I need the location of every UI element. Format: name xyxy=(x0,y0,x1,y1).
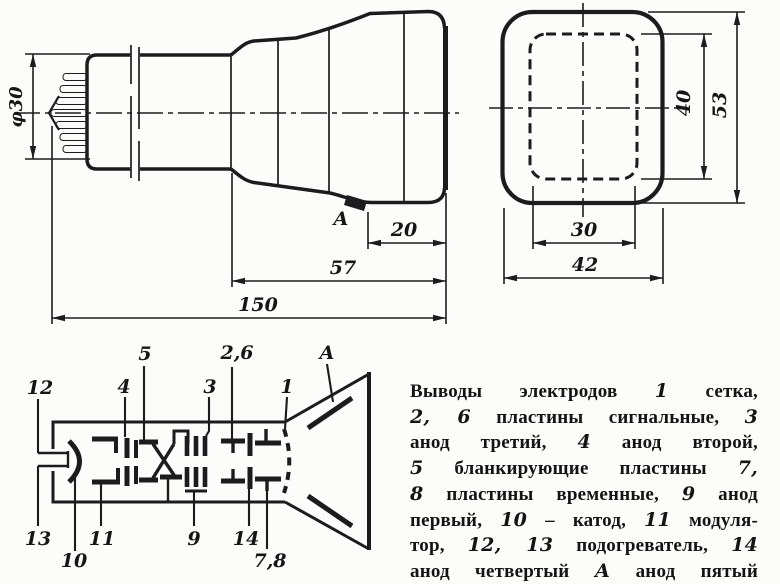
tube-envelope xyxy=(87,12,446,212)
dim-30: 30 xyxy=(533,186,635,249)
dim-42-label: 42 xyxy=(572,254,598,276)
legend-line: тор, 12, 13 подогреватель, 14 xyxy=(410,533,758,559)
legend-line: первый, 10 – катод, 11 модуля- xyxy=(410,508,758,534)
dim-40: 40 xyxy=(641,34,712,179)
label-12: 12 xyxy=(27,377,53,399)
dim-20: 20 xyxy=(368,193,446,324)
dim-150-label: 150 xyxy=(238,294,278,316)
label-13: 13 xyxy=(25,528,51,550)
dim-30-label: 30 xyxy=(571,219,597,241)
scanned-figure-page: φ30 20 57 150 А xyxy=(0,0,780,584)
anode-tab-label: А xyxy=(331,208,348,230)
electrode-diagram: 12 4 5 3 2,6 1 А 13 10 11 9 14 7,8 xyxy=(25,342,369,572)
cathode xyxy=(69,441,80,482)
label-A: А xyxy=(317,342,334,364)
label-10: 10 xyxy=(61,550,87,572)
side-view: φ30 20 57 150 А xyxy=(6,12,459,325)
legend-text: Выводы электродов 1 сетка,2, 6 пластины … xyxy=(410,379,758,584)
dim-57-label: 57 xyxy=(330,257,356,279)
dim-40-label: 40 xyxy=(673,90,695,116)
dim-diameter-30: φ30 xyxy=(6,54,90,159)
label-2-6: 2,6 xyxy=(219,342,253,364)
label-3: 3 xyxy=(203,376,216,398)
label-7-8: 7,8 xyxy=(253,550,286,572)
label-4: 4 xyxy=(117,376,130,398)
legend-line: Выводы электродов 1 сетка, xyxy=(410,379,758,405)
legend-line: анод четвертый А анод пятый xyxy=(410,559,758,584)
label-14: 14 xyxy=(233,528,259,550)
mesh-grid xyxy=(284,429,289,493)
dim-diameter-label: φ30 xyxy=(6,86,27,128)
dim-20-label: 20 xyxy=(390,219,417,241)
dim-150: 150 xyxy=(52,126,446,324)
legend-line: 5 бланкирующие пластины 7, xyxy=(410,456,758,482)
label-1: 1 xyxy=(280,376,293,398)
dim-53-label: 53 xyxy=(709,92,731,118)
anode-coating-top xyxy=(308,398,352,428)
legend-line: 2, 6 пластины сигнальные, 3 xyxy=(410,405,758,431)
front-view: 40 53 30 42 xyxy=(489,3,745,284)
legend-line: 8 пластины временные, 9 анод xyxy=(410,482,758,508)
label-9: 9 xyxy=(187,528,200,550)
label-11: 11 xyxy=(89,528,115,550)
lead-1 xyxy=(285,397,287,429)
label-5: 5 xyxy=(138,343,151,365)
legend-line: анод третий, 4 анод второй, xyxy=(410,430,758,456)
lead-3 xyxy=(206,397,209,436)
anode-coating-bottom xyxy=(308,496,352,526)
